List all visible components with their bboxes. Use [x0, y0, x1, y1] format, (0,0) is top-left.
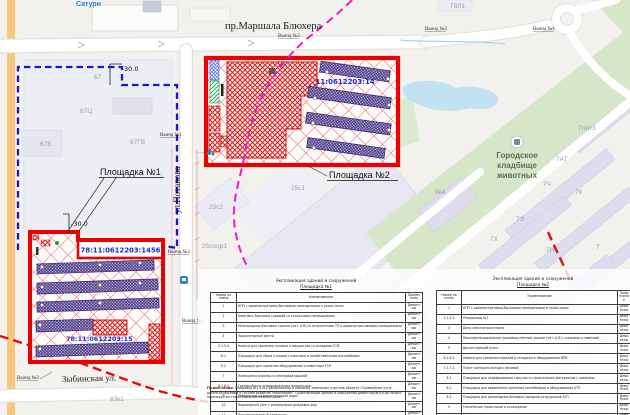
site1-cadastral-number-2: 78:11:0612203:15	[66, 335, 133, 343]
svg-text:25с1: 25с1	[291, 185, 305, 192]
svg-text:-30.0: -30.0	[71, 220, 88, 228]
cemetery-marker-icon[interactable]	[511, 136, 523, 148]
table-row: 7Помещения охраны со смотровой вышкойДем…	[211, 372, 423, 382]
table2-title: Экспликация зданий и сооружений	[436, 277, 630, 282]
table-row: 5.1-5.4Навесы для хранения техники и иму…	[211, 342, 423, 352]
table-row: 6.1-6.2Навесы для хранения изделий и скл…	[437, 354, 630, 364]
svg-text:7Э: 7Э	[516, 216, 525, 223]
cemetery-label: Городское кладбище животных	[496, 151, 538, 180]
col-note: Примечание	[618, 291, 630, 305]
orange-road	[7, 0, 15, 415]
note-label: Примечание:	[207, 386, 234, 390]
explication-table-site2-wrap: Номер на плане Наименование Примечание 1…	[436, 290, 630, 415]
svg-text:25с2: 25с2	[209, 204, 223, 211]
table1-subtitle: Площадка №1	[210, 285, 422, 290]
col-number: Номер на плане	[437, 291, 462, 305]
table-row: 4Прожекторные мачтыДемонтаж	[211, 332, 423, 342]
table-header-row: Номер на плане Наименование Примечание	[437, 291, 630, 305]
svg-text:9к4: 9к4	[435, 189, 445, 196]
site1-red-structure	[93, 320, 127, 335]
table-row: 7.1-7.2Пункт контроля въезда с весовойДе…	[437, 364, 630, 374]
site1-cadastral-number: 78:11:0612203:1456	[81, 247, 161, 255]
table-row: 2Комплекс боксовых гаражей со складскими…	[211, 312, 423, 322]
svg-text:67Б: 67Б	[40, 141, 52, 148]
svg-text:30.0: 30.0	[124, 65, 138, 73]
table-row: 1КПП с административно-бытовыми помещени…	[211, 302, 423, 312]
svg-text:Площадка №2: Площадка №2	[329, 170, 390, 180]
svg-text:кладбище: кладбище	[497, 161, 537, 170]
table-row: 8.2Площадки для временного хранения конт…	[437, 384, 630, 394]
col-name: Наименование	[462, 291, 618, 305]
table-row: 11Противопожарный резервуарДемонтаж	[211, 411, 423, 415]
svg-text:7К: 7К	[575, 189, 583, 196]
col-number: Номер на плане	[211, 293, 237, 303]
saturn-label: Сатурн	[76, 1, 101, 8]
table-row: 3Депо электротранспортаДемонтаж	[437, 324, 630, 334]
table-row: 9Озеленение территории и ограждениеДемон…	[437, 403, 630, 413]
table-row: 6.2Площадки для хранения оборудования и …	[211, 362, 423, 372]
svg-text:67ГВ: 67ГВ	[130, 139, 145, 146]
bus-stop-icon[interactable]	[180, 276, 188, 284]
table-row: 4Многофункциональное производственное зд…	[437, 334, 630, 344]
site1-red-structure-right	[149, 324, 160, 360]
svg-text:25соор1: 25соор1	[202, 243, 227, 250]
svg-text:67: 67	[94, 74, 102, 81]
table2-subtitle: Площадка №2	[436, 283, 630, 288]
svg-text:7лит3: 7лит3	[578, 125, 596, 132]
svg-text:7Х: 7Х	[490, 236, 499, 243]
street-zybinskaya: Зыбинская ул.	[62, 373, 116, 384]
table-row: 5Диспетчерский пунктДемонтаж	[437, 344, 630, 354]
table-header-row: Номер на плане Наименование Примечание	[211, 293, 423, 303]
svg-text:78Л1: 78Л1	[450, 3, 465, 10]
svg-text:67Ц: 67Ц	[80, 108, 92, 115]
table-row: 6.1Площадки для сбора отходов с навесами…	[211, 352, 423, 362]
svg-text:7АТ: 7АТ	[556, 156, 567, 163]
table-row: 2.1-2.3Резервуары №1Демонтаж	[437, 314, 630, 324]
col-name: Наименование	[237, 293, 406, 303]
site2-roof-structure	[269, 68, 275, 74]
explication-table-site2: Номер на плане Наименование Примечание 1…	[436, 290, 630, 415]
col-note: Примечание	[406, 293, 423, 303]
note-block: Примечание: Площадки №1 и №2 расположены…	[207, 386, 422, 399]
table-row: 8.3Площадки для размещения бытовых город…	[437, 393, 630, 403]
street-potapova: ул.Потапова	[172, 166, 182, 213]
site-plan-map-screenshot: 67 67Ц 67Б 67ГВ 78Л1 7лит3 7АТ 7Ч 7К 7Э …	[0, 0, 630, 415]
marker-dot-icon	[207, 151, 211, 155]
svg-text:7Ч: 7Ч	[543, 181, 551, 188]
site2-area: 78:11:0612203:14	[206, 58, 398, 165]
svg-text:7: 7	[596, 244, 600, 251]
table-row: 1КПП с административно-бытовыми помещени…	[437, 304, 630, 314]
table1-title: Экспликация зданий и сооружений	[210, 279, 422, 284]
table-row: 3Многорядные боксовые гаражи (лит. А-В) …	[211, 322, 423, 332]
street-blyukhera: пр.Маршала Блюхера	[225, 21, 322, 32]
svg-text:Городское: Городское	[496, 151, 538, 160]
table-row: 8.1Площадки для складирования сыпучих и …	[437, 374, 630, 384]
svg-text:животных: животных	[496, 171, 538, 180]
svg-text:Площадка №1: Площадка №1	[100, 167, 161, 177]
site1-area: 78:11:0612203:1456 78:11:0612203:15	[30, 232, 163, 362]
svg-text:63к1: 63к1	[110, 396, 124, 403]
svg-text:7Н: 7Н	[546, 247, 555, 254]
table-row: 10Водомерный узел с резервуаром дождевых…	[211, 401, 423, 411]
